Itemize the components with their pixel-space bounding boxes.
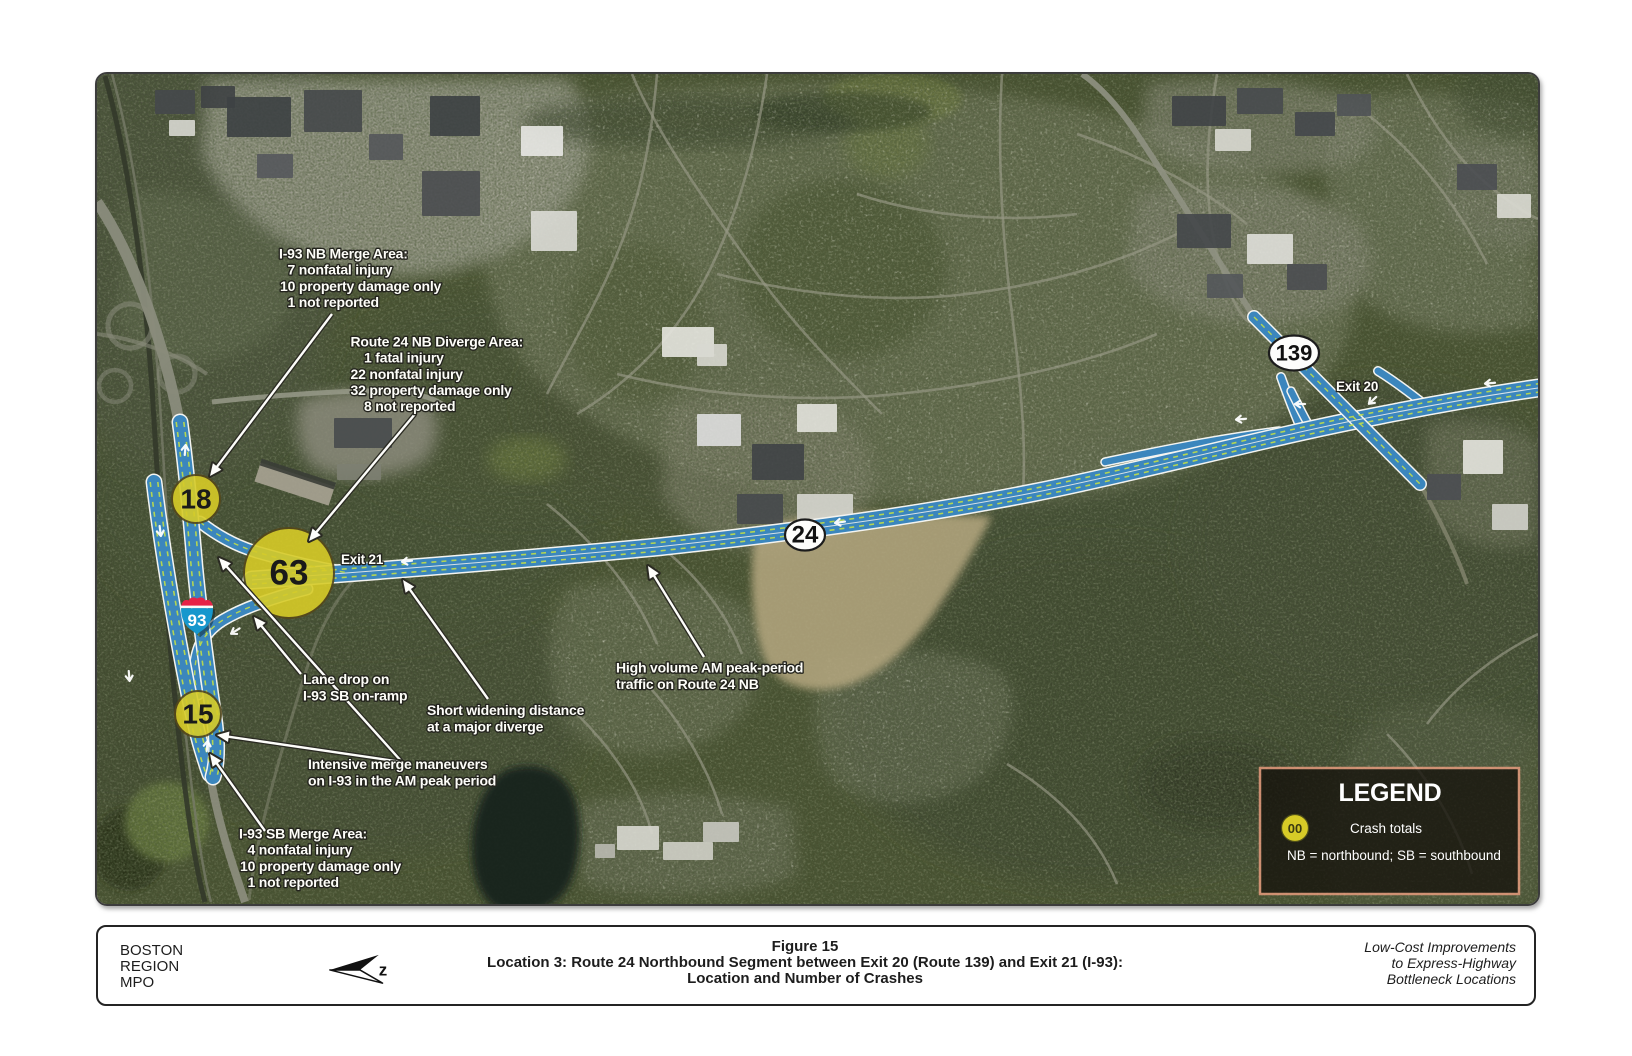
svg-text:8 not reported: 8 not reported: [364, 398, 455, 414]
svg-text:NB = northbound; SB = southbou: NB = northbound; SB = southbound: [1287, 848, 1501, 863]
svg-text:Route 24 NB Diverge Area:: Route 24 NB Diverge Area:: [351, 333, 524, 349]
svg-text:High volume AM peak-period: High volume AM peak-period: [616, 660, 803, 676]
svg-text:63: 63: [270, 554, 309, 593]
svg-text:93: 93: [188, 611, 207, 630]
svg-text:1 fatal injury: 1 fatal injury: [364, 350, 444, 366]
svg-text:15: 15: [182, 699, 213, 730]
svg-text:I-93 NB Merge Area:: I-93 NB Merge Area:: [279, 246, 408, 262]
svg-text:on I-93 in the AM peak period: on I-93 in the AM peak period: [308, 772, 496, 788]
svg-text:139: 139: [1276, 341, 1313, 366]
svg-text:24: 24: [792, 522, 819, 549]
svg-text:traffic on Route 24 NB: traffic on Route 24 NB: [616, 676, 759, 692]
svg-text:I-93 SB on-ramp: I-93 SB on-ramp: [303, 687, 407, 703]
svg-text:I-93 SB Merge Area:: I-93 SB Merge Area:: [239, 826, 367, 842]
svg-text:10 property damage only: 10 property damage only: [240, 858, 402, 874]
svg-text:4 nonfatal injury: 4 nonfatal injury: [248, 842, 353, 858]
svg-text:LEGEND: LEGEND: [1339, 779, 1442, 807]
svg-text:Crash totals: Crash totals: [1350, 821, 1422, 836]
svg-text:18: 18: [180, 484, 211, 515]
svg-text:7 nonfatal injury: 7 nonfatal injury: [288, 262, 393, 278]
svg-text:00: 00: [1288, 821, 1302, 836]
svg-text:32 property damage only: 32 property damage only: [351, 382, 513, 398]
svg-text:Exit 20: Exit 20: [1336, 379, 1378, 394]
svg-text:at a major diverge: at a major diverge: [427, 718, 544, 734]
svg-text:Intensive merge maneuvers: Intensive merge maneuvers: [308, 756, 488, 772]
svg-text:10 property damage only: 10 property damage only: [280, 278, 442, 294]
svg-text:Lane drop on: Lane drop on: [303, 671, 389, 687]
svg-text:Exit 21: Exit 21: [341, 552, 384, 567]
svg-text:22 nonfatal injury: 22 nonfatal injury: [351, 366, 464, 382]
svg-text:1 not reported: 1 not reported: [248, 874, 339, 890]
svg-text:1 not reported: 1 not reported: [288, 294, 379, 310]
svg-text:Short widening distance: Short widening distance: [427, 702, 585, 718]
